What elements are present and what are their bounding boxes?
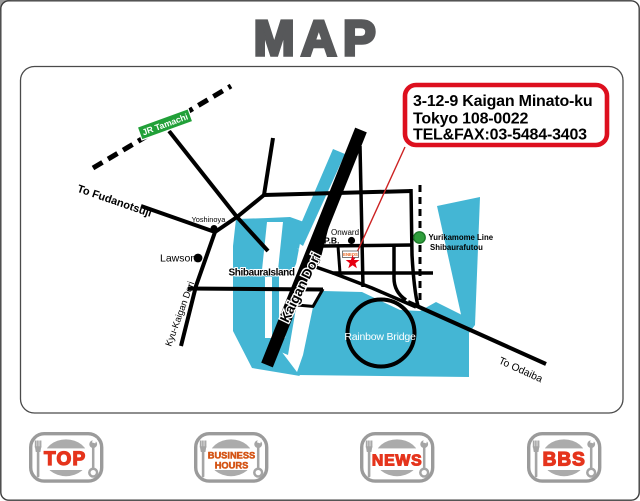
svg-text:ShibauraIsland: ShibauraIsland — [229, 268, 295, 279]
svg-text:P.B.: P.B. — [324, 236, 339, 246]
svg-text:Tokyo 108-0022: Tokyo 108-0022 — [413, 111, 528, 128]
svg-text:MAP: MAP — [254, 12, 382, 66]
svg-text:BBS: BBS — [543, 450, 586, 471]
svg-text:HOURS: HOURS — [215, 461, 249, 471]
svg-text:Rainbow Bridge: Rainbow Bridge — [344, 331, 416, 343]
svg-text:TOP: TOP — [44, 449, 86, 470]
svg-text:BUSINESS: BUSINESS — [208, 450, 256, 460]
svg-text:TEL&FAX:03-5484-3403: TEL&FAX:03-5484-3403 — [413, 127, 587, 144]
svg-text:Yoshinoya: Yoshinoya — [192, 215, 227, 224]
svg-text:Yurikamome Line: Yurikamome Line — [429, 233, 494, 242]
svg-text:3-12-9 Kaigan Minato-ku: 3-12-9 Kaigan Minato-ku — [413, 93, 592, 110]
svg-text:Lawson: Lawson — [160, 253, 196, 265]
svg-text:ENEOS: ENEOS — [343, 252, 358, 257]
svg-text:Shibaurafutou: Shibaurafutou — [430, 243, 483, 252]
svg-text:NEWS: NEWS — [372, 452, 423, 469]
